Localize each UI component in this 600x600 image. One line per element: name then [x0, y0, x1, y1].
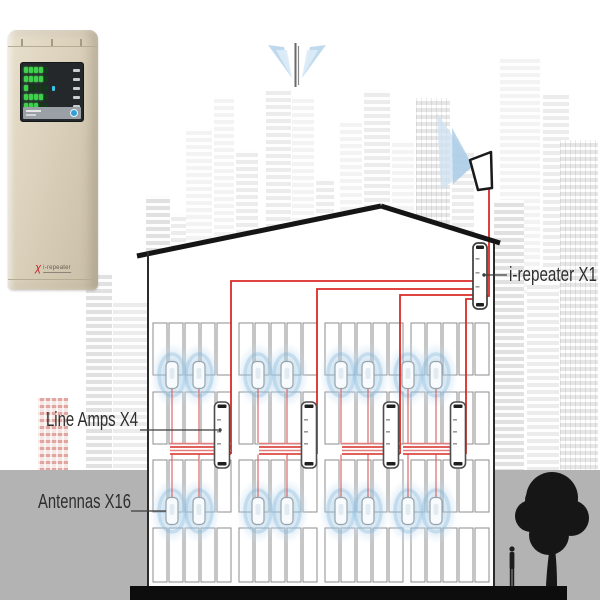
- led-on: [39, 94, 43, 100]
- device-led-panel: [20, 62, 84, 122]
- led-row-label: [73, 87, 80, 90]
- line-amp-led: [386, 419, 390, 421]
- line-amp-cap: [305, 462, 314, 466]
- donor-antenna: [437, 113, 492, 190]
- window: [459, 528, 473, 582]
- led-on: [24, 85, 28, 91]
- led-on: [24, 67, 28, 73]
- antenna-detail: [366, 368, 371, 379]
- line-amp-cap: [305, 405, 314, 409]
- led-on: [24, 76, 28, 82]
- person-head: [509, 546, 514, 551]
- window: [475, 323, 489, 375]
- window: [303, 528, 317, 582]
- antenna-detail: [256, 368, 261, 379]
- led-row: [24, 84, 80, 92]
- line-amp-cap: [387, 405, 396, 409]
- led-on: [34, 76, 38, 82]
- antennas-label: Antennas X16: [38, 491, 131, 513]
- led-off: [44, 67, 48, 73]
- led-row-label: [73, 78, 80, 81]
- led-off: [29, 85, 33, 91]
- antenna-detail: [197, 504, 202, 515]
- antenna-detail: [339, 504, 344, 515]
- screenshot-root: i-repeater X1 Line Amps X4 Antennas X16 …: [0, 0, 600, 600]
- tree-canopy: [549, 486, 577, 514]
- antenna-detail: [339, 368, 344, 379]
- logo-text: i-repeater: [43, 265, 71, 271]
- line-amp-cap: [454, 462, 463, 466]
- repeater-led: [476, 286, 480, 288]
- led-row: [24, 66, 80, 74]
- led-cyan: [52, 86, 55, 91]
- led-on: [34, 67, 38, 73]
- person-leg: [510, 568, 512, 586]
- window: [217, 528, 231, 582]
- led-off: [44, 76, 48, 82]
- device-vent-tick: [21, 39, 23, 46]
- antenna-detail: [434, 368, 439, 379]
- cell-tower-mast: [268, 43, 326, 87]
- person-body: [510, 552, 515, 569]
- repeater-product-photo: χ i-repeater: [8, 30, 98, 290]
- antenna-detail: [406, 504, 411, 515]
- line-amps-leader-dot: [218, 428, 221, 431]
- antenna-detail: [406, 368, 411, 379]
- strip-text-bar: [26, 114, 36, 116]
- line-amp-led: [453, 431, 457, 433]
- led-off: [44, 85, 48, 91]
- person-leg: [512, 568, 514, 586]
- device-info-strip: [23, 107, 81, 119]
- donor-signal-inner-icon: [452, 128, 473, 184]
- device-button-blue: [70, 109, 78, 117]
- strip-text-bar: [26, 110, 41, 112]
- led-off: [44, 94, 48, 100]
- line-amp-cap: [454, 405, 463, 409]
- led-on: [24, 94, 28, 100]
- line-amp: [302, 402, 317, 468]
- repeater-label: i-repeater X1: [509, 264, 597, 286]
- led-on: [29, 67, 33, 73]
- line-amp: [451, 402, 466, 468]
- led-off: [34, 85, 38, 91]
- antenna-detail: [366, 504, 371, 515]
- line-amp-led: [304, 419, 308, 421]
- led-on: [29, 94, 33, 100]
- device-vent-tick: [80, 39, 82, 46]
- led-row-label: [73, 96, 80, 99]
- led-row-label: [73, 69, 80, 72]
- line-amp-led: [386, 443, 390, 445]
- line-amp: [215, 402, 230, 468]
- antenna-detail: [285, 504, 290, 515]
- ground-panel-left: [0, 470, 148, 600]
- antenna-detail: [434, 504, 439, 515]
- line-amp-led: [217, 419, 221, 421]
- device-seam: [8, 279, 98, 280]
- led-on: [39, 76, 43, 82]
- window: [475, 528, 489, 582]
- antenna-detail: [256, 504, 261, 515]
- window: [475, 392, 489, 444]
- line-amp-cap: [218, 405, 227, 409]
- device-seam: [8, 46, 98, 47]
- line-amp-cap: [218, 462, 227, 466]
- window: [475, 460, 489, 512]
- line-amp-led: [453, 419, 457, 421]
- logo-underline: [43, 272, 71, 273]
- led-row: [24, 93, 80, 101]
- line-amp-led: [217, 443, 221, 445]
- led-on: [34, 94, 38, 100]
- led-row: [24, 75, 80, 83]
- tree-canopy: [529, 515, 569, 555]
- line-amps-label: Line Amps X4: [46, 409, 138, 431]
- antenna-detail: [285, 368, 290, 379]
- antenna-detail: [170, 504, 175, 515]
- antenna-detail: [170, 368, 175, 379]
- ground-line: [130, 586, 567, 600]
- led-on: [29, 76, 33, 82]
- line-amp-led: [304, 443, 308, 445]
- tree-canopy: [525, 488, 549, 512]
- line-amp-led: [453, 443, 457, 445]
- repeater-led: [476, 258, 480, 260]
- logo-swoosh-icon: χ: [35, 263, 41, 274]
- led-off: [39, 85, 43, 91]
- repeater-cap: [476, 303, 484, 307]
- led-on: [39, 67, 43, 73]
- line-amp: [384, 402, 399, 468]
- horn-antenna-icon: [470, 152, 492, 190]
- line-amp-led: [304, 431, 308, 433]
- device-logo: χ i-repeater: [35, 263, 71, 274]
- device-vent-tick: [51, 39, 53, 46]
- line-amp-cap: [387, 462, 396, 466]
- line-amp-led: [386, 431, 390, 433]
- repeater-led: [476, 272, 480, 274]
- repeater-leader-dot: [482, 273, 485, 276]
- repeater-cap: [476, 246, 484, 250]
- antenna-detail: [197, 368, 202, 379]
